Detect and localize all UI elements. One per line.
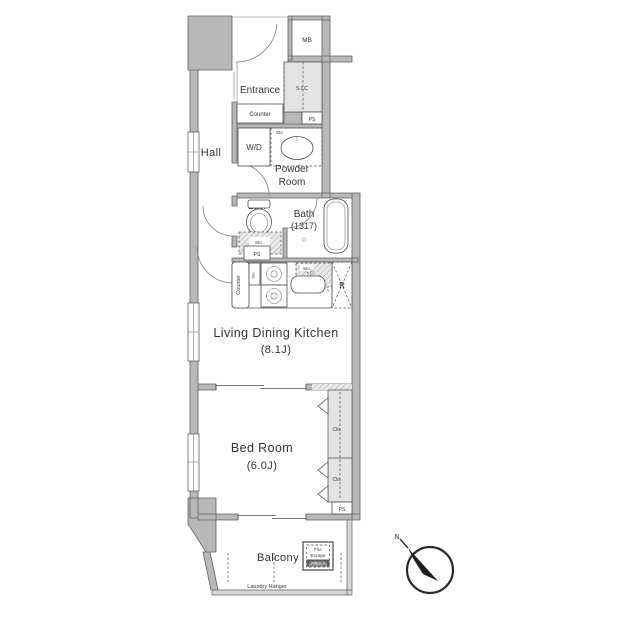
bath-size-label: (1317) [291,221,317,231]
hall-label: Hall [201,147,222,159]
bedroom-label: Bed Room [231,441,293,455]
wd-label: W/D [246,143,262,152]
bath-label: Bath [294,209,315,220]
balcony-label: Balcony [257,552,299,564]
compass: N [394,534,453,593]
ldk-label: Living Dining Kitchen [213,326,338,340]
sto-label-vertical: Sto. [251,271,256,278]
window-bedroom [188,434,199,491]
bathroom: Bath (1317) ☆ [291,199,348,253]
refrigerator-label: R [339,281,345,290]
closet-label-2: Clo. [333,477,342,483]
closet: Clo. Clo. [318,390,352,502]
lavatory-door-swing [203,206,233,236]
closet-label-1: Clo. [333,427,342,433]
fire-escape-hatch: Fire Escape (避難器具) [303,542,333,570]
wall-hatch [312,384,352,390]
floor-plan: MB Entrance S.I.C PS Counter Hall W/D St… [0,0,640,640]
ldk-size-label: (8.1J) [261,344,292,356]
window-hall [188,132,199,172]
mb-label: MB [302,37,312,44]
entrance-section: MB Entrance S.I.C PS Counter [237,37,322,124]
balcony: Balcony Fire Escape (避難器具) Laundry Hange… [228,542,341,590]
folding-door-mark-3 [318,486,328,502]
compass-circle [407,547,453,593]
fire-escape-label-2: Escape [310,553,326,558]
sto-label-vanity: Sto. [276,130,284,135]
refrigerator-space: R [332,262,352,308]
ps-label-top: PS [309,117,316,123]
powder-room: W/D Sto. Powder Room [238,128,322,188]
ps-label-bottom: PS [339,507,346,513]
powder-room-label-1: Powder [275,164,310,175]
sliding-door-ldk-bedroom [216,384,306,390]
fire-escape-label-3: (避難器具) [309,560,328,566]
sto-label-lav: Sto. [255,240,263,245]
folding-door-mark-1 [318,398,328,414]
bedroom: Bed Room (6.0J) Clo. Clo. PS [231,390,352,520]
kitchen: Counter Sto. Sto. R [232,262,352,308]
bath-star: ☆ [301,236,307,244]
laundry-hanger-label: Laundry Hanger [247,584,287,590]
entrance-door-swing [236,24,277,62]
entrance-label: Entrance [240,85,280,96]
living-dining-kitchen: Living Dining Kitchen (8.1J) [213,326,338,390]
sic-label: S.I.C [296,86,308,92]
counter-label-vertical: Counter [236,275,242,295]
window-ldk [188,303,199,361]
fire-escape-label-1: Fire [314,547,322,552]
kitchen-sink [291,276,325,293]
bedroom-size-label: (6.0J) [247,460,278,472]
pipe-space-mid-group: PS [244,246,270,260]
compass-needle-tip [400,539,408,548]
powder-room-label-2: Room [279,177,306,188]
counter-label: Counter [249,112,270,118]
sto-label-cabinet: Sto. [303,266,311,271]
compass-needle [408,548,438,581]
floor-plan-page: MB Entrance S.I.C PS Counter Hall W/D St… [0,0,640,640]
compass-north-label: N [394,534,399,541]
sliding-window-balcony [238,514,306,520]
toilet-tank [248,200,270,208]
powder-door-swing [236,163,269,196]
ps-label-mid: PS [254,252,261,258]
folding-door-mark-2 [318,462,328,478]
ldk-door-swing [197,247,233,283]
